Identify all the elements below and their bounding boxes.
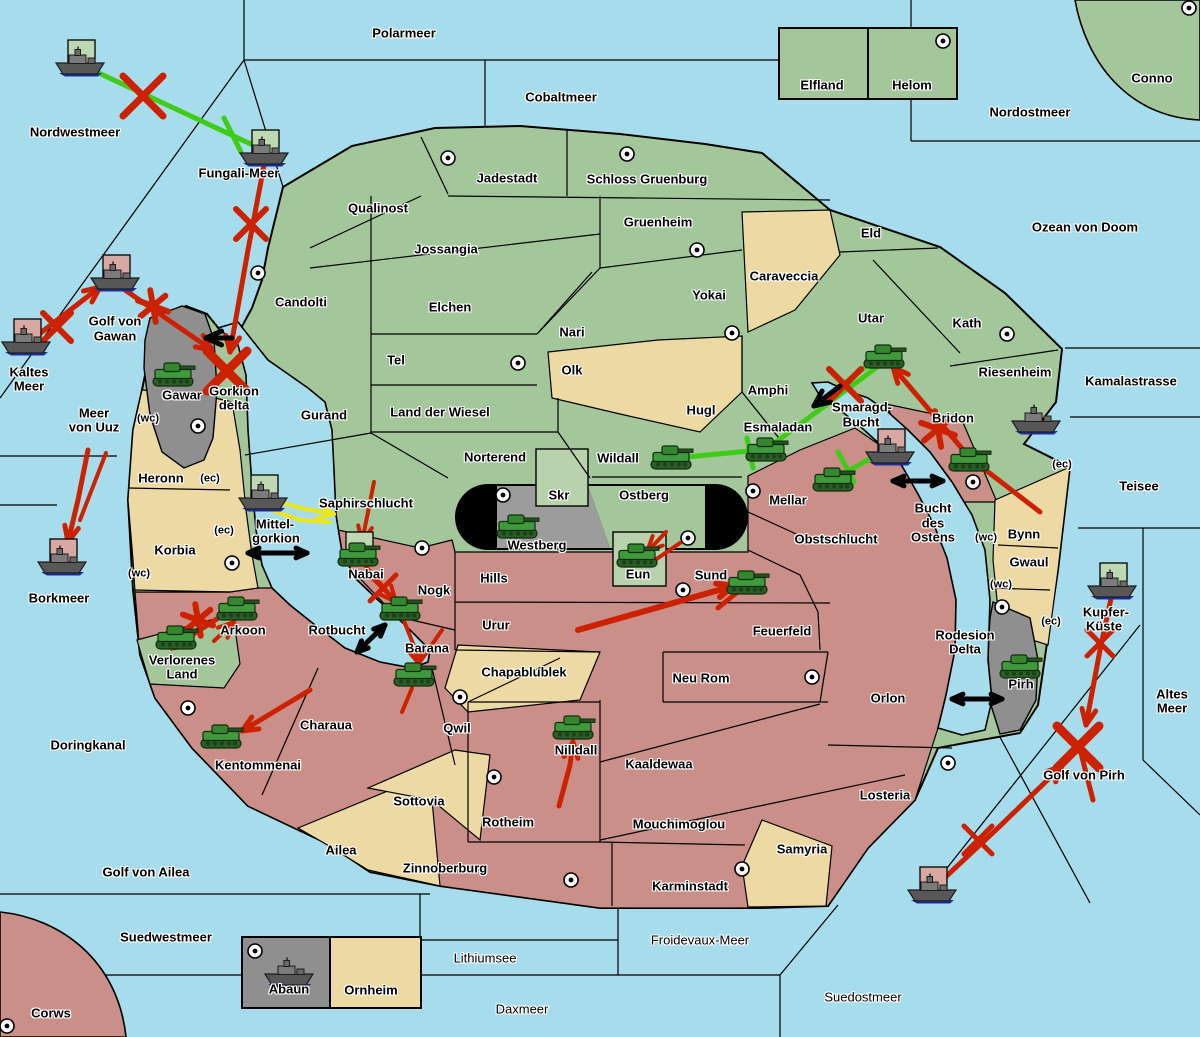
supply-center-dot <box>681 588 686 593</box>
supply-center-dot <box>420 546 425 551</box>
supply-center-dot <box>186 706 191 711</box>
supply-center-dot <box>941 39 946 44</box>
supply-center-dot <box>458 695 463 700</box>
supply-center-dot <box>196 424 201 429</box>
supply-center-dot <box>516 361 521 366</box>
map-canvas[interactable] <box>0 0 1200 1037</box>
supply-center-dot <box>446 156 451 161</box>
supply-center-dot <box>230 561 235 566</box>
supply-center-dot <box>492 775 497 780</box>
supply-center-dot <box>810 675 815 680</box>
supply-center-dot <box>751 489 756 494</box>
supply-center-dot <box>1187 6 1192 11</box>
supply-center-dot <box>946 761 951 766</box>
supply-center-dot <box>695 248 700 253</box>
supply-center-dot <box>253 949 258 954</box>
region-ornheim[interactable] <box>330 937 421 1008</box>
supply-center-dot <box>971 480 976 485</box>
region-skr[interactable] <box>536 449 588 506</box>
supply-center-dot <box>730 331 735 336</box>
supply-center-dot <box>1005 332 1010 337</box>
supply-center-dot <box>740 867 745 872</box>
region-elfland[interactable] <box>779 28 868 99</box>
supply-center-dot <box>256 271 261 276</box>
supply-center-dot <box>5 1024 10 1029</box>
supply-center-dot <box>1000 605 1005 610</box>
supply-center-dot <box>686 536 691 541</box>
game-map[interactable]: PolarmeerCobaltmeerNordwestmeerNordostme… <box>0 0 1200 1037</box>
supply-center-dot <box>501 493 506 498</box>
supply-center-dot <box>569 878 574 883</box>
supply-center-dot <box>625 152 630 157</box>
arrow-head <box>195 347 212 350</box>
